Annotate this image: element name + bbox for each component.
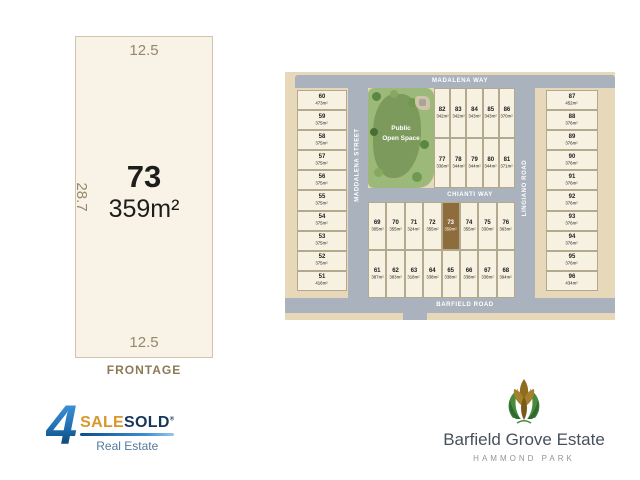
lot-size: 338m² xyxy=(445,275,457,279)
lot-number: 58 xyxy=(319,134,326,140)
map-lot-56: 56375m² xyxy=(297,170,347,190)
lot-block-north: 82342m²83342m²84343m²85343m²86370m² 7733… xyxy=(434,88,515,188)
lot-size: 330m² xyxy=(481,227,493,231)
lot-number: 88 xyxy=(569,114,576,120)
lot-size: 452m² xyxy=(566,101,578,105)
map-lot-73: 73359m² xyxy=(442,202,460,250)
lot-size: 375m² xyxy=(316,202,328,206)
lot-row-69-76: 69305m²70355m²71324m²72355m²73359m²74355… xyxy=(368,202,515,250)
map-lot-90: 90376m² xyxy=(546,150,598,170)
map-lot-64: 64338m² xyxy=(423,250,441,298)
lot-size: 375m² xyxy=(316,142,328,146)
lot-number: 81 xyxy=(504,157,511,163)
lot-size: 383m² xyxy=(389,275,401,279)
map-lot-69: 69305m² xyxy=(368,202,386,250)
map-lot-96: 96434m² xyxy=(546,271,598,291)
map-lot-76: 76363m² xyxy=(497,202,515,250)
map-lot-57: 57375m² xyxy=(297,150,347,170)
lot-number: 82 xyxy=(439,107,446,113)
lot-size: 473m² xyxy=(316,101,328,105)
lot-size: 324m² xyxy=(408,227,420,231)
map-lot-61: 61387m² xyxy=(368,250,386,298)
map-lot-53: 53375m² xyxy=(297,231,347,251)
lot-number: 78 xyxy=(455,157,462,163)
lot-size: 376m² xyxy=(566,202,578,206)
lot-number: 93 xyxy=(569,214,576,220)
flyer: 12.5 28.7 73 359m² 12.5 FRONTAGE MADALEN… xyxy=(0,0,640,480)
lot-number: 90 xyxy=(569,154,576,160)
lot-diagram: 12.5 28.7 73 359m² 12.5 xyxy=(75,36,213,358)
lot-number: 65 xyxy=(447,268,454,274)
lot-number: 70 xyxy=(392,220,399,226)
lot-area: 359m² xyxy=(76,195,212,224)
map-lot-78: 78344m² xyxy=(450,138,466,188)
lot-size: 318m² xyxy=(408,275,420,279)
lot-size: 343m² xyxy=(468,114,480,118)
street-label-maddalena-street: MADDALENA STREET xyxy=(355,128,361,201)
map-lot-60: 60473m² xyxy=(297,90,347,110)
lot-number: 60 xyxy=(319,94,326,100)
map-lot-55: 55375m² xyxy=(297,190,347,210)
map-lot-75: 75330m² xyxy=(478,202,496,250)
lot-number: 72 xyxy=(429,220,436,226)
lot-number: 64 xyxy=(429,268,436,274)
foursalesold-logo: 4 SALESOLD® Real Estate xyxy=(46,402,174,453)
lot-size: 344m² xyxy=(468,164,480,168)
lot-size: 375m² xyxy=(316,162,328,166)
map-lot-93: 93376m² xyxy=(546,211,598,231)
map-lot-94: 94376m² xyxy=(546,231,598,251)
lot-block-central: 69305m²70355m²71324m²72355m²73359m²74355… xyxy=(368,202,515,298)
lot-number: 85 xyxy=(487,107,494,113)
lot-number: 67 xyxy=(484,268,491,274)
map-lot-88: 88376m² xyxy=(546,110,598,130)
map-lot-92: 92376m² xyxy=(546,190,598,210)
map-lot-77: 77336m² xyxy=(434,138,450,188)
lot-size: 344m² xyxy=(452,164,464,168)
map-lot-82: 82342m² xyxy=(434,88,450,138)
map-lot-52: 52375m² xyxy=(297,251,347,271)
open-space-label: Public Open Space xyxy=(368,124,434,144)
lot-size: 338m² xyxy=(426,275,438,279)
lot-number: 51 xyxy=(319,274,326,280)
tree-icon xyxy=(412,172,422,182)
lot-number: 54 xyxy=(319,214,326,220)
lot-block-east: 87452m²88376m²89376m²90376m²91376m²92376… xyxy=(546,90,598,291)
foursalesold-four: 4 xyxy=(46,402,77,448)
map-lot-79: 79344m² xyxy=(466,138,482,188)
lot-number: 89 xyxy=(569,134,576,140)
lot-size: 355m² xyxy=(426,227,438,231)
lot-number: 69 xyxy=(374,220,381,226)
lot-size: 371m² xyxy=(501,164,513,168)
lot-number: 91 xyxy=(569,174,576,180)
lot-number: 53 xyxy=(319,234,326,240)
lot-size: 342m² xyxy=(452,114,464,118)
lot-size: 342m² xyxy=(436,114,448,118)
lot-size: 375m² xyxy=(316,222,328,226)
registered-mark: ® xyxy=(170,417,175,423)
lot-size: 434m² xyxy=(566,282,578,286)
logo-underline xyxy=(80,433,174,436)
map-lot-51: 51416m² xyxy=(297,271,347,291)
lot-number: 77 xyxy=(439,157,446,163)
map-lot-89: 89376m² xyxy=(546,130,598,150)
lot-size: 375m² xyxy=(316,242,328,246)
lot-number: 73 xyxy=(447,220,454,226)
lot-size: 338m² xyxy=(481,275,493,279)
lot-number: 84 xyxy=(471,107,478,113)
lot-number: 59 xyxy=(319,114,326,120)
lot-number: 56 xyxy=(319,174,326,180)
map-lot-91: 91376m² xyxy=(546,170,598,190)
map-lot-63: 63318m² xyxy=(405,250,423,298)
lot-number: 95 xyxy=(569,254,576,260)
road-stub xyxy=(403,313,427,320)
map-lot-95: 95376m² xyxy=(546,251,598,271)
lot-size: 375m² xyxy=(316,121,328,125)
map-lot-65: 65338m² xyxy=(442,250,460,298)
tree-icon xyxy=(372,92,381,101)
map-lot-83: 83342m² xyxy=(450,88,466,138)
map-lot-72: 72355m² xyxy=(423,202,441,250)
lot-number: 68 xyxy=(502,268,509,274)
lot-size: 305m² xyxy=(371,227,383,231)
map-lot-74: 74355m² xyxy=(460,202,478,250)
lot-size: 355m² xyxy=(463,227,475,231)
map-lot-80: 80344m² xyxy=(483,138,499,188)
lot-size: 375m² xyxy=(316,262,328,266)
lot-size: 344m² xyxy=(485,164,497,168)
lot-size: 376m² xyxy=(566,142,578,146)
lot-size: 363m² xyxy=(500,227,512,231)
map-lot-62: 62383m² xyxy=(386,250,404,298)
lot-size: 338m² xyxy=(463,275,475,279)
lot-number: 73 xyxy=(76,159,212,195)
lot-size: 359m² xyxy=(445,227,457,231)
tree-icon xyxy=(390,90,398,98)
lot-size: 376m² xyxy=(566,242,578,246)
lot-number: 75 xyxy=(484,220,491,226)
lot-row-77-81: 77336m²78344m²79344m²80344m²81371m² xyxy=(434,138,515,188)
map-lot-58: 58375m² xyxy=(297,130,347,150)
lot-number: 52 xyxy=(319,254,326,260)
lot-number: 55 xyxy=(319,194,326,200)
map-lot-67: 67338m² xyxy=(478,250,496,298)
lot-number: 94 xyxy=(569,234,576,240)
lot-size: 376m² xyxy=(566,121,578,125)
lot-number: 63 xyxy=(411,268,418,274)
bottom-dimension: 12.5 xyxy=(76,334,212,351)
lot-size: 375m² xyxy=(316,182,328,186)
lot-number: 61 xyxy=(374,268,381,274)
lot-number: 86 xyxy=(504,107,511,113)
map-lot-66: 66338m² xyxy=(460,250,478,298)
lot-size: 370m² xyxy=(501,114,513,118)
playground-icon xyxy=(419,99,426,106)
map-lot-59: 59375m² xyxy=(297,110,347,130)
lot-size: 336m² xyxy=(436,164,448,168)
lot-number: 92 xyxy=(569,194,576,200)
lot-block-west: 60473m²59375m²58375m²57375m²56375m²55375… xyxy=(297,90,347,291)
tree-icon xyxy=(374,168,383,177)
map-lot-68: 68394m² xyxy=(497,250,515,298)
lot-size: 355m² xyxy=(389,227,401,231)
lot-size: 376m² xyxy=(566,262,578,266)
lot-size: 343m² xyxy=(485,114,497,118)
lot-number: 80 xyxy=(487,157,494,163)
foursalesold-wordmark: SALESOLD® xyxy=(80,415,174,431)
frontage-label: FRONTAGE xyxy=(75,363,213,377)
street-label-lingiano-road: LINGIANO ROAD xyxy=(522,159,528,215)
pine-tree-icon xyxy=(498,378,550,424)
lot-size: 376m² xyxy=(566,182,578,186)
lot-number: 71 xyxy=(411,220,418,226)
map-lot-86: 86370m² xyxy=(499,88,515,138)
foursalesold-tagline: Real Estate xyxy=(80,439,174,453)
lot-number: 83 xyxy=(455,107,462,113)
map-lot-85: 85343m² xyxy=(483,88,499,138)
lot-number: 66 xyxy=(466,268,473,274)
lot-number: 76 xyxy=(502,220,509,226)
estate-logo: Barfield Grove Estate HAMMOND PARK xyxy=(438,378,610,463)
public-open-space: Public Open Space xyxy=(368,88,434,188)
map-lot-71: 71324m² xyxy=(405,202,423,250)
map-lot-81: 81371m² xyxy=(499,138,515,188)
lot-size: 376m² xyxy=(566,222,578,226)
lot-row-61-68: 61387m²62383m²63318m²64338m²65338m²66338… xyxy=(368,250,515,298)
lot-number: 57 xyxy=(319,154,326,160)
street-label-barfield-road: BARFIELD ROAD xyxy=(385,298,545,313)
lot-number: 62 xyxy=(392,268,399,274)
lot-number: 87 xyxy=(569,94,576,100)
map-lot-70: 70355m² xyxy=(386,202,404,250)
map-lot-84: 84343m² xyxy=(466,88,482,138)
estate-name: Barfield Grove Estate xyxy=(438,430,610,450)
map-lot-87: 87452m² xyxy=(546,90,598,110)
lot-number: 74 xyxy=(466,220,473,226)
estate-map: MADALENA WAY CHIANTI WAY BARFIELD ROAD M… xyxy=(285,72,615,320)
lot-size: 416m² xyxy=(316,282,328,286)
top-dimension: 12.5 xyxy=(76,42,212,59)
lot-row-82-86: 82342m²83342m²84343m²85343m²86370m² xyxy=(434,88,515,138)
lot-number: 96 xyxy=(569,274,576,280)
lot-size: 376m² xyxy=(566,162,578,166)
map-lot-54: 54375m² xyxy=(297,211,347,231)
lot-number: 79 xyxy=(471,157,478,163)
street-label-chianti-way: CHIANTI WAY xyxy=(415,188,525,202)
estate-location: HAMMOND PARK xyxy=(438,454,610,463)
lot-size: 387m² xyxy=(371,275,383,279)
lot-size: 394m² xyxy=(500,275,512,279)
